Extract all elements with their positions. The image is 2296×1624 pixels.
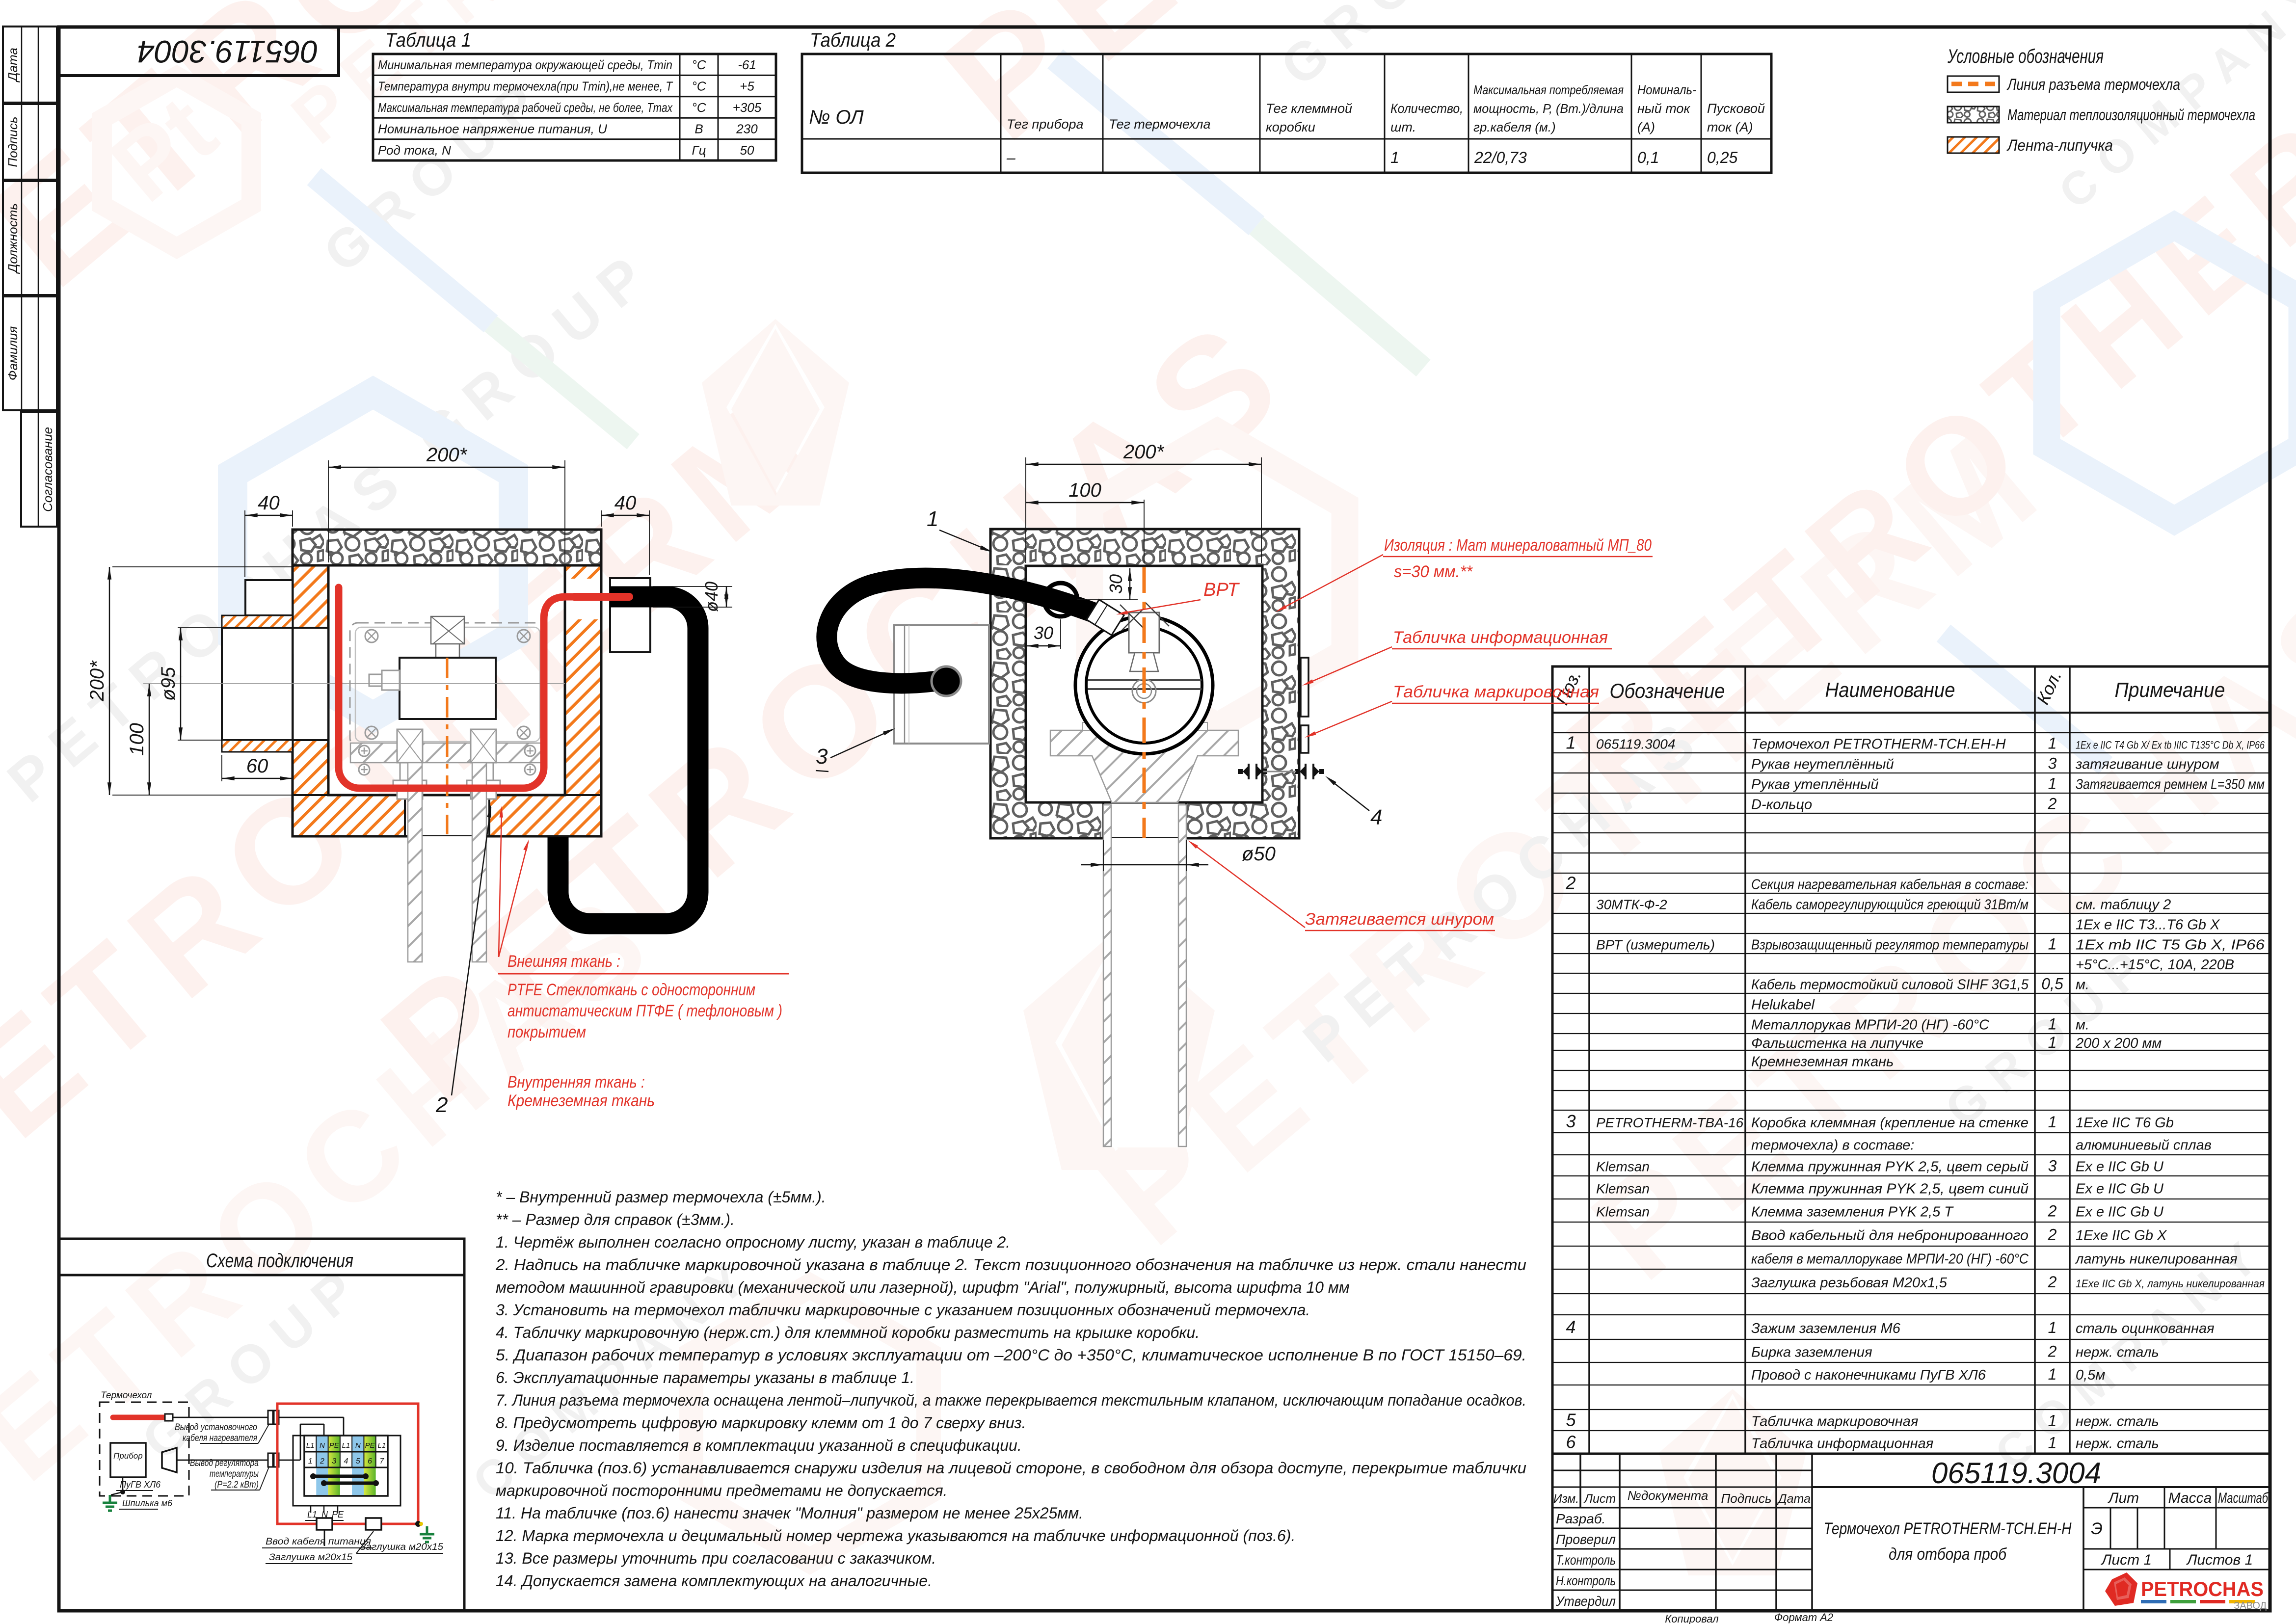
svg-text:1: 1 (927, 507, 938, 531)
svg-text:Ввод кабеля питания: Ввод кабеля питания (266, 1537, 371, 1547)
svg-text:Т.контроль: Т.контроль (1556, 1552, 1616, 1568)
svg-text:Номиналь-: Номиналь- (1637, 82, 1696, 97)
svg-text:0,25: 0,25 (1707, 149, 1737, 166)
svg-text:Масштаб: Масштаб (2218, 1490, 2269, 1506)
svg-text:шт.: шт. (1390, 120, 1416, 134)
svg-text:затягивание шнуром: затягивание шнуром (2075, 757, 2219, 772)
svg-text:3: 3 (2048, 755, 2057, 772)
svg-text:Затягивается шнуром: Затягивается шнуром (1305, 910, 1494, 929)
svg-text:Металлорукав МРПИ-20 (НГ) -60°: Металлорукав МРПИ-20 (НГ) -60°C (1751, 1017, 1990, 1033)
svg-text:Табличка маркировочная: Табличка маркировочная (1393, 683, 1599, 701)
svg-text:Таблица 1: Таблица 1 (385, 29, 471, 51)
svg-text:Листов 1: Листов 1 (2186, 1552, 2253, 1568)
svg-text:Изоляция : Мат минераловатный: Изоляция : Мат минераловатный МП_80 (1384, 536, 1652, 555)
svg-text:PETROTHERM-TBA-16: PETROTHERM-TBA-16 (1596, 1115, 1744, 1130)
svg-text:Линия разъема термочехла: Линия разъема термочехла (2006, 76, 2180, 93)
svg-text:5. Диапазон рабочих температур: 5. Диапазон рабочих температур в условия… (496, 1346, 1526, 1364)
svg-text:Ex e IIC Gb U: Ex e IIC Gb U (2076, 1204, 2164, 1220)
svg-text:200*: 200* (1123, 441, 1165, 463)
svg-text:алюминиевый сплав: алюминиевый сплав (2076, 1138, 2212, 1153)
svg-text:6: 6 (368, 1457, 372, 1465)
svg-text:Примечание: Примечание (2115, 678, 2225, 701)
svg-text:+305: +305 (733, 100, 762, 115)
svg-text:Дата: Дата (5, 48, 20, 83)
svg-text:Табличка маркировочная: Табличка маркировочная (1751, 1414, 1918, 1430)
svg-text:2: 2 (2048, 795, 2057, 813)
svg-text:2: 2 (2048, 1273, 2057, 1291)
svg-text:1Exe IIC Gb X, латунь никелиро: 1Exe IIC Gb X, латунь никелированная (2076, 1278, 2265, 1290)
svg-text:Табличка информационная: Табличка информационная (1751, 1436, 1933, 1452)
svg-text:Термочехол: Термочехол (101, 1390, 152, 1401)
svg-text:Фамилия: Фамилия (5, 326, 20, 381)
svg-text:2: 2 (1565, 873, 1575, 893)
svg-text:230: 230 (736, 121, 758, 136)
svg-text:13. Все размеры уточнить при с: 13. Все размеры уточнить при согласовани… (496, 1549, 936, 1567)
svg-text:методом машинной гравировки (м: методом машинной гравировки (механическо… (496, 1278, 1350, 1296)
svg-text:Род тока, N: Род тока, N (378, 143, 451, 158)
svg-text:3: 3 (2048, 1157, 2057, 1175)
svg-text:7. Линия разъема термочехла ос: 7. Линия разъема термочехла оснащена лен… (496, 1391, 1526, 1409)
svg-text:Тег клеммной: Тег клеммной (1266, 101, 1352, 116)
svg-text:№документа: №документа (1628, 1488, 1709, 1503)
svg-text:м.: м. (2076, 1017, 2089, 1033)
svg-text:Максимальная температура рабоч: Максимальная температура рабочей среды, … (378, 100, 673, 115)
svg-text:Должность: Должность (5, 203, 20, 274)
svg-text:50: 50 (740, 143, 754, 158)
svg-text:PE: PE (365, 1441, 375, 1450)
svg-text:Разраб.: Разраб. (1556, 1511, 1605, 1526)
svg-text:Минимальная температура окружа: Минимальная температура окружающей среды… (378, 57, 672, 72)
svg-text:Копировал: Копировал (1665, 1613, 1718, 1624)
svg-text:нерж. сталь: нерж. сталь (2076, 1414, 2159, 1430)
svg-text:Секция нагревательная кабельна: Секция нагревательная кабельная в состав… (1751, 877, 2029, 893)
svg-text:PETROCHAS: PETROCHAS (2141, 1577, 2264, 1600)
svg-text:°C: °C (692, 100, 706, 115)
svg-text:Кремнеземная ткань: Кремнеземная ткань (1751, 1054, 1894, 1070)
svg-text:Вывод регулятора: Вывод регулятора (190, 1458, 259, 1468)
svg-text:кабеля в металлорукаве МРПИ-20: кабеля в металлорукаве МРПИ-20 (НГ) -60°… (1751, 1251, 2029, 1267)
svg-text:Прибор: Прибор (113, 1451, 143, 1461)
svg-text:антистатическим ПТФЕ ( тефлоно: антистатическим ПТФЕ ( тефлоновым ) (507, 1002, 782, 1020)
svg-text:1: 1 (1390, 149, 1399, 166)
svg-text:Таблица 2: Таблица 2 (810, 29, 896, 51)
svg-text:1: 1 (2048, 1034, 2057, 1051)
svg-text:1Exe IIC T6 Gb: 1Exe IIC T6 Gb (2076, 1115, 2174, 1131)
svg-text:100: 100 (1068, 479, 1101, 501)
svg-text:L1: L1 (342, 1441, 350, 1450)
svg-text:8. Предусмотреть цифровую марк: 8. Предусмотреть цифровую маркировку кле… (496, 1414, 1026, 1432)
svg-text:Клемма заземления PYK 2,5 Т: Клемма заземления PYK 2,5 Т (1751, 1204, 1954, 1220)
svg-text:–: – (1006, 149, 1015, 166)
svg-text:10. Табличка (поз.6) устанавли: 10. Табличка (поз.6) устанавливается сна… (496, 1459, 1526, 1477)
svg-text:200*: 200* (426, 444, 468, 466)
svg-text:D-кольцо: D-кольцо (1751, 797, 1812, 813)
svg-text:Вывод установочного: Вывод установочного (175, 1422, 257, 1433)
svg-text:Зажим заземления М6: Зажим заземления М6 (1751, 1321, 1901, 1336)
svg-text:065119.3004: 065119.3004 (1931, 1457, 2101, 1490)
svg-text:нерж. сталь: нерж. сталь (2076, 1345, 2159, 1360)
svg-text:Ex e IIC Gb U: Ex e IIC Gb U (2076, 1159, 2164, 1175)
svg-text:Рукав утеплённый: Рукав утеплённый (1751, 777, 1878, 793)
svg-text:0,5: 0,5 (2041, 975, 2063, 993)
svg-text:кабеля нагревателя: кабеля нагревателя (183, 1433, 257, 1443)
svg-text:0,5м: 0,5м (2076, 1367, 2105, 1383)
svg-text:ВРТ (измеритель): ВРТ (измеритель) (1596, 937, 1715, 953)
svg-text:коробки: коробки (1266, 120, 1315, 134)
svg-text:(А): (А) (1637, 120, 1655, 134)
svg-text:4: 4 (1566, 1317, 1575, 1337)
svg-text:Дата: Дата (1777, 1492, 1811, 1506)
svg-text:Заглушка м20х15: Заглушка м20х15 (269, 1552, 352, 1563)
svg-text:(Р=2.2 кВт): (Р=2.2 кВт) (214, 1480, 259, 1490)
svg-text:Внешняя ткань :: Внешняя ткань : (507, 952, 620, 971)
svg-text:1: 1 (2048, 1434, 2057, 1452)
svg-text:2. Надпись на табличке маркиро: 2. Надпись на табличке маркировочной ука… (495, 1256, 1526, 1274)
svg-text:Лист 1: Лист 1 (2101, 1552, 2152, 1568)
svg-text:065119.3004: 065119.3004 (137, 34, 319, 69)
svg-text:см. таблицу 2: см. таблицу 2 (2076, 897, 2171, 913)
svg-text:N: N (355, 1441, 361, 1450)
svg-text:0,1: 0,1 (1637, 149, 1659, 166)
svg-text:ø40: ø40 (701, 582, 721, 612)
svg-text:1: 1 (2048, 1319, 2057, 1336)
svg-text:Э: Э (2091, 1519, 2103, 1538)
svg-text:100: 100 (126, 723, 148, 756)
svg-text:+5: +5 (740, 79, 754, 94)
svg-text:Изм.: Изм. (1553, 1492, 1579, 1506)
svg-text:Подпись: Подпись (1721, 1491, 1771, 1506)
svg-text:L1: L1 (307, 1510, 317, 1519)
svg-text:Лист: Лист (1583, 1492, 1616, 1506)
svg-text:Номинальное напряжение питания: Номинальное напряжение питания, U (378, 121, 607, 136)
svg-text:Заглушка м20х15: Заглушка м20х15 (360, 1542, 443, 1552)
svg-text:°C: °C (692, 79, 706, 94)
svg-text:Коробка клеммная (крепление на: Коробка клеммная (крепление на стенке (1751, 1115, 2029, 1131)
svg-text:Ex e IIC Gb U: Ex e IIC Gb U (2076, 1181, 2164, 1197)
svg-text:3: 3 (1566, 1111, 1575, 1131)
svg-text:Klemsan: Klemsan (1596, 1204, 1650, 1220)
svg-text:ПуГВ ХЛ6: ПуГВ ХЛ6 (120, 1480, 161, 1490)
svg-text:Тег термочехла: Тег термочехла (1109, 117, 1211, 132)
svg-text:латунь никелированная: латунь никелированная (2075, 1251, 2238, 1267)
svg-text:Бирка заземления: Бирка заземления (1751, 1345, 1872, 1360)
svg-text:30: 30 (1106, 574, 1126, 594)
svg-text:Схема подключения: Схема подключения (206, 1250, 353, 1272)
svg-text:065119.3004: 065119.3004 (1596, 737, 1675, 752)
svg-text:Масса: Масса (2168, 1490, 2212, 1506)
svg-text:Формат А2: Формат А2 (1774, 1611, 1833, 1624)
svg-text:Тег прибора: Тег прибора (1007, 117, 1084, 132)
svg-text:2: 2 (435, 1093, 448, 1117)
svg-text:для отбора проб: для отбора проб (1889, 1545, 2007, 1564)
svg-text:2: 2 (320, 1457, 324, 1465)
svg-text:Фальшстенка на липучке: Фальшстенка на липучке (1751, 1036, 1923, 1051)
svg-text:L1: L1 (306, 1441, 315, 1450)
svg-text:4: 4 (344, 1457, 348, 1465)
svg-text:5: 5 (1566, 1410, 1576, 1430)
svg-text:Термочехол PETROTHERM-TCH.EH-H: Термочехол PETROTHERM-TCH.EH-H (1751, 737, 2006, 752)
svg-text:Клемма пружинная PYK 2,5, цвет: Клемма пружинная PYK 2,5, цвет серый (1751, 1159, 2029, 1175)
svg-text:°C: °C (692, 57, 706, 72)
svg-text:60: 60 (246, 755, 268, 777)
svg-text:Кабель саморегулирующийся грею: Кабель саморегулирующийся греющий 31Вт/м (1751, 897, 2029, 913)
svg-text:6. Эксплуатационные параметры: 6. Эксплуатационные параметры указаны в … (496, 1369, 914, 1386)
svg-text:1. Чертёж выполнен согласно оп: 1. Чертёж выполнен согласно опросному ли… (496, 1233, 1010, 1251)
svg-text:Затягивается ремнем L=350 мм: Затягивается ремнем L=350 мм (2076, 777, 2265, 793)
svg-text:11. На табличке (поз.6) нанест: 11. На табличке (поз.6) нанести значек "… (496, 1504, 1083, 1522)
svg-text:1: 1 (2048, 935, 2057, 953)
svg-text:ный ток: ный ток (1637, 101, 1690, 116)
svg-text:1: 1 (2048, 735, 2057, 752)
svg-text:Согласование: Согласование (40, 427, 55, 512)
svg-text:2: 2 (2048, 1343, 2057, 1360)
svg-text:В: В (694, 121, 703, 136)
svg-text:Взрывозащищенный регулятор тем: Взрывозащищенный регулятор температуры (1751, 937, 2029, 953)
svg-text:Ввод кабельный для небронирова: Ввод кабельный для небронированного (1751, 1228, 2029, 1244)
svg-text:Провод с наконечниками ПуГВ ХЛ: Провод с наконечниками ПуГВ ХЛ6 (1751, 1367, 1986, 1383)
svg-text:N: N (320, 1441, 325, 1450)
svg-text:-61: -61 (738, 57, 756, 72)
svg-text:Условные обозначения: Условные обозначения (1947, 46, 2104, 67)
svg-text:Klemsan: Klemsan (1596, 1181, 1650, 1197)
svg-text:1Exe IIC Gb X: 1Exe IIC Gb X (2076, 1228, 2167, 1244)
svg-text:1: 1 (2048, 1412, 2057, 1430)
svg-text:L1: L1 (378, 1441, 386, 1450)
svg-text:Температура внутри термочехла(: Температура внутри термочехла(при Tmin),… (378, 79, 673, 94)
svg-text:нерж. сталь: нерж. сталь (2076, 1436, 2159, 1452)
svg-text:ток (А): ток (А) (1707, 120, 1753, 134)
svg-text:1Ex mb IIC T5 Gb X, IP66: 1Ex mb IIC T5 Gb X, IP66 (2076, 937, 2265, 953)
svg-text:6: 6 (1566, 1432, 1576, 1452)
svg-text:Пусковой: Пусковой (1707, 101, 1765, 116)
svg-text:1: 1 (2048, 1113, 2057, 1131)
svg-text:маркировочной посторонними пре: маркировочной посторонними предметами не… (496, 1482, 947, 1499)
svg-text:Материал теплоизоляционный тер: Материал теплоизоляционный термочехла (2007, 106, 2255, 124)
svg-text:22/0,73: 22/0,73 (1474, 149, 1527, 166)
svg-text:Кремнеземная ткань: Кремнеземная ткань (507, 1092, 655, 1110)
svg-text:Кабель термостойкий силовой SI: Кабель термостойкий силовой SIHF 3G1,5 (1751, 977, 2029, 993)
svg-text:3. Установить на термочехол та: 3. Установить на термочехол таблички мар… (496, 1301, 1310, 1319)
svg-text:PE: PE (332, 1510, 344, 1519)
svg-text:2: 2 (2048, 1202, 2057, 1220)
svg-text:ø95: ø95 (158, 666, 179, 701)
svg-text:ЗАВОД: ЗАВОД (2234, 1600, 2267, 1611)
svg-text:Термочехол PETROTHERM-TCH.EH-H: Термочехол PETROTHERM-TCH.EH-H (1824, 1519, 2072, 1538)
svg-text:1Ex e IIC Т3...Т6 Gb X: 1Ex e IIC Т3...Т6 Gb X (2076, 917, 2220, 933)
svg-text:1: 1 (1566, 733, 1575, 753)
svg-text:1: 1 (2048, 1365, 2057, 1383)
svg-text:200 х 200 мм: 200 х 200 мм (2075, 1036, 2162, 1051)
svg-text:мощность, Р, (Вт.)/длина: мощность, Р, (Вт.)/длина (1473, 101, 1624, 116)
svg-text:Обозначение: Обозначение (1610, 679, 1725, 702)
svg-text:Заглушка резьбовая М20х1,5: Заглушка резьбовая М20х1,5 (1751, 1275, 1948, 1291)
svg-text:гр.кабеля (м.): гр.кабеля (м.) (1473, 120, 1556, 134)
svg-text:2: 2 (2048, 1226, 2057, 1244)
svg-text:PTFE Стеклоткань с односторон: PTFE Стеклоткань с односторонним (507, 981, 755, 999)
svg-text:14. Допускается замена комплек: 14. Допускается замена комплектующих на … (496, 1572, 932, 1590)
svg-text:* – Внутренний размер термочех: * – Внутренний размер термочехла (±5мм.)… (496, 1188, 826, 1206)
svg-text:Рукав неутеплённый: Рукав неутеплённый (1751, 757, 1894, 772)
svg-text:Утвердил: Утвердил (1555, 1594, 1616, 1609)
svg-text:3: 3 (332, 1457, 336, 1465)
svg-text:температуры: температуры (210, 1469, 259, 1479)
svg-text:Внутренняя ткань :: Внутренняя ткань : (507, 1073, 645, 1092)
svg-text:Helukabel: Helukabel (1751, 997, 1815, 1013)
svg-text:термочехла) в составе:: термочехла) в составе: (1751, 1138, 1914, 1153)
svg-text:1Ex e IIC T4 Gb X/ Ex tb IIIC: 1Ex e IIC T4 Gb X/ Ex tb IIIC T135°C Db … (2076, 739, 2265, 751)
svg-text:Шпилька м6: Шпилька м6 (122, 1498, 173, 1508)
svg-text:9. Изделие поставляется в комп: 9. Изделие поставляется в комплектации у… (496, 1437, 1022, 1454)
svg-text:№ ОЛ: № ОЛ (809, 106, 864, 128)
svg-text:4: 4 (1370, 805, 1382, 829)
svg-text:Подпись: Подпись (5, 116, 20, 167)
svg-text:PE: PE (329, 1441, 340, 1450)
svg-text:Klemsan: Klemsan (1596, 1159, 1650, 1174)
svg-text:5: 5 (356, 1457, 360, 1465)
svg-text:Проверил: Проверил (1556, 1532, 1616, 1547)
svg-text:1: 1 (2048, 775, 2057, 793)
svg-text:s=30 мм.**: s=30 мм.** (1394, 562, 1473, 581)
svg-text:Гц: Гц (692, 143, 706, 158)
svg-text:Максимальная потребляемая: Максимальная потребляемая (1473, 82, 1624, 97)
svg-text:Табличка информационная: Табличка информационная (1393, 628, 1608, 647)
svg-text:12. Марка термочехла и децимал: 12. Марка термочехла и децимальный номер… (496, 1527, 1295, 1544)
svg-text:сталь оцинкованная: сталь оцинкованная (2076, 1321, 2215, 1336)
svg-text:Лента-липучка: Лента-липучка (2006, 136, 2113, 154)
svg-text:4. Табличку маркировочную (нер: 4. Табличку маркировочную (нерж.ст.) для… (496, 1324, 1200, 1341)
svg-text:ø50: ø50 (1242, 843, 1276, 865)
svg-text:+5°C...+15°C, 10А, 220В: +5°C...+15°C, 10А, 220В (2076, 957, 2234, 973)
svg-text:30МТК-Ф-2: 30МТК-Ф-2 (1596, 897, 1667, 912)
svg-text:40: 40 (258, 492, 280, 514)
svg-text:Наименование: Наименование (1825, 678, 1955, 701)
svg-text:Лит: Лит (2108, 1490, 2139, 1506)
svg-text:** – Размер для справок (±3мм.: ** – Размер для справок (±3мм.). (496, 1211, 735, 1228)
svg-text:Клемма пружинная PYK 2,5, цвет: Клемма пружинная PYK 2,5, цвет синий (1751, 1181, 2029, 1197)
svg-text:ВРТ: ВРТ (1203, 580, 1240, 600)
svg-text:Количество,: Количество, (1390, 101, 1463, 116)
svg-text:1: 1 (2048, 1015, 2057, 1033)
svg-text:1: 1 (308, 1457, 313, 1465)
svg-text:3: 3 (816, 745, 828, 769)
svg-text:200*: 200* (86, 660, 108, 702)
svg-text:7: 7 (379, 1457, 384, 1465)
svg-text:Н.контроль: Н.контроль (1556, 1573, 1616, 1588)
svg-text:30: 30 (1034, 623, 1053, 643)
svg-text:40: 40 (614, 492, 637, 514)
svg-text:покрытием: покрытием (507, 1023, 586, 1041)
svg-text:м.: м. (2076, 977, 2089, 993)
